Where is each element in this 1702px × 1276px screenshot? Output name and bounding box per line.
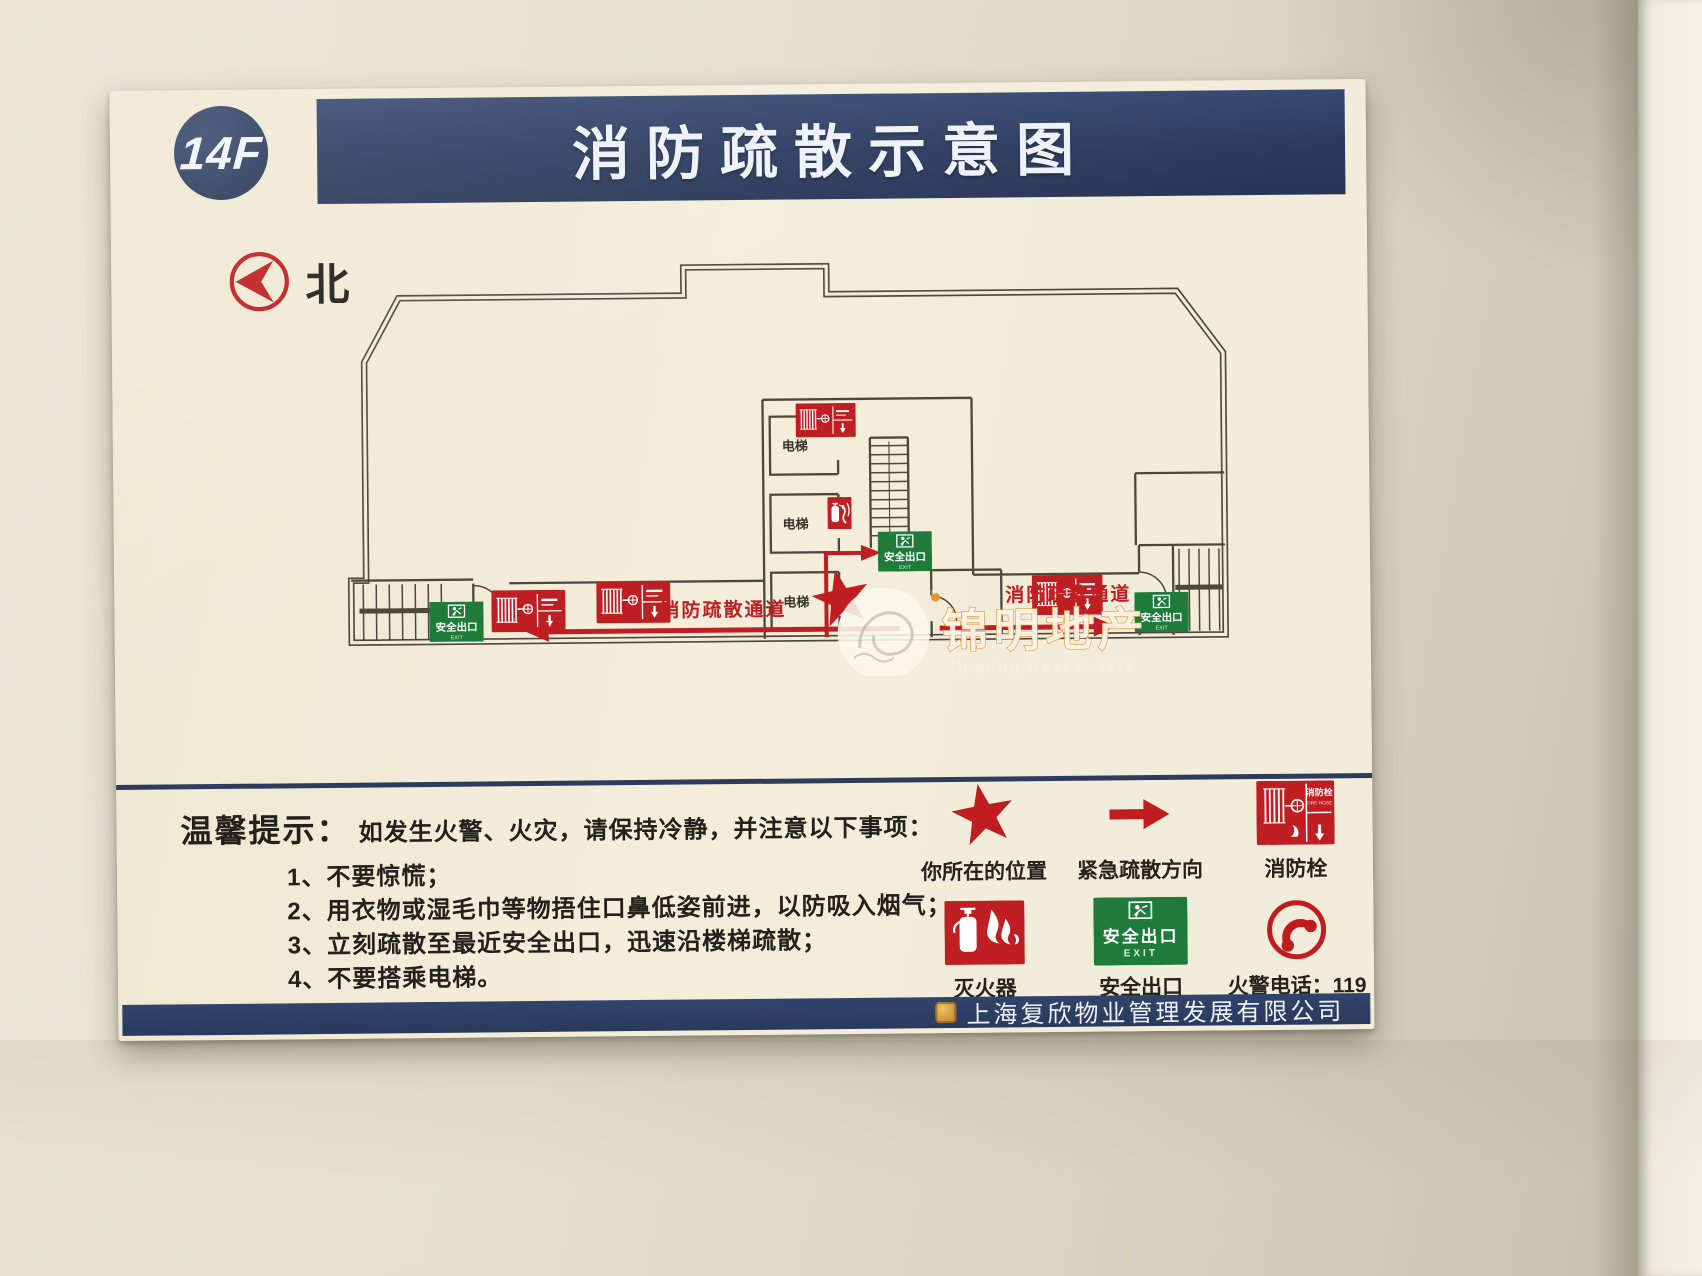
watermark-reg: ® [931, 589, 936, 596]
legend-safety-exit: 安全出口 EXIT 安全出口 [1065, 895, 1216, 1001]
tips-item-1: 1、不要惊慌； [287, 859, 921, 890]
legend-you-are-here: 你所在的位置 [908, 780, 1059, 886]
arrow-right-icon [1107, 779, 1172, 850]
evacuation-sign-board: 14F 消防疏散示意图 北 [109, 79, 1374, 1041]
exit-sign-left: 安全出口 EXIT [429, 601, 483, 642]
north-indicator: 北 [223, 245, 350, 318]
legend-fire-extinguisher: 灭火器 [909, 897, 1060, 1003]
tips-section: 温馨提示： 如发生火警、火灾，请保持冷静，并注意以下事项： 1、不要惊慌； 2、… [180, 799, 922, 1002]
stairs-core [871, 441, 908, 543]
phone-icon [1263, 894, 1330, 965]
exit-sign-core: 安全出口 EXIT [878, 531, 932, 572]
elevator-label: 电梯 [783, 594, 809, 609]
company-name: 上海复欣物业管理发展有限公司 [966, 991, 1344, 1030]
legend-fire-hydrant: 消防栓 FIRE HOSE 消防栓 [1220, 777, 1371, 883]
watermark-subtitle: Jinming Real Estate [946, 658, 1136, 677]
exit-sign-text-en: EXIT [1156, 625, 1169, 631]
fire-hydrant-sign [796, 403, 856, 438]
tips-item-4: 4、不要搭乘电梯。 [288, 961, 922, 992]
hydrant-sign-text: 消防栓 [1306, 786, 1333, 797]
wall-lower-shading [0, 1040, 1702, 1276]
tips-intro: 如发生火警、火灾，请保持冷静，并注意以下事项： [358, 807, 933, 848]
floor-badge: 14F [174, 106, 269, 201]
exit-sign-text-en: EXIT [451, 635, 464, 641]
corridor-label-left: 消防疏散通道 [660, 598, 786, 622]
tips-item-2: 2、用衣物或湿毛巾等物捂住口鼻低姿前进，以防吸入烟气； [287, 893, 921, 924]
legend: 你所在的位置 紧急疏散方向 [908, 777, 1372, 1003]
fire-extinguisher-icon [944, 897, 1025, 968]
page-title: 消防疏散示意图 [572, 102, 1091, 191]
north-arrow-icon [223, 245, 296, 318]
company-logo-icon [935, 1002, 956, 1023]
star-icon [948, 780, 1019, 851]
floor-label: 14F [178, 126, 264, 181]
header-bar: 消防疏散示意图 [317, 89, 1346, 204]
legend-label: 消防栓 [1264, 852, 1327, 883]
legend-label: 你所在的位置 [921, 855, 1047, 886]
legend-evacuation-direction: 紧急疏散方向 [1064, 778, 1215, 884]
exit-sign-text-en: EXIT [1124, 948, 1158, 959]
tips-heading: 温馨提示： [180, 805, 350, 853]
fire-hydrant-sign [491, 590, 565, 633]
exit-sign-text: 安全出口 [436, 621, 478, 634]
exit-sign-text: 安全出口 [884, 550, 926, 563]
tips-item-3: 3、立刻疏散至最近安全出口，迅速沿楼梯疏散； [288, 927, 922, 958]
legend-fire-phone: 火警电话：119 [1221, 894, 1372, 1000]
elevator-labels: 电梯 电梯 电梯 [782, 438, 810, 609]
exit-sign-icon: 安全出口 EXIT [1093, 896, 1188, 967]
fire-hydrant-icon: 消防栓 FIRE HOSE [1256, 777, 1335, 848]
floor-plan: 电梯 电梯 电梯 消防疏散通道 消防疏散通道 [338, 242, 1242, 681]
hydrant-sign-text-en: FIRE HOSE [1306, 800, 1332, 806]
exit-sign-text: 安全出口 [1103, 926, 1179, 947]
exit-sign-text-en: EXIT [899, 565, 912, 571]
elevator-label: 电梯 [782, 438, 808, 453]
legend-label: 紧急疏散方向 [1077, 854, 1203, 885]
elevator-label: 电梯 [783, 516, 809, 531]
watermark-name: 锦明地产 [941, 603, 1149, 657]
fire-extinguisher-sign [827, 497, 851, 529]
